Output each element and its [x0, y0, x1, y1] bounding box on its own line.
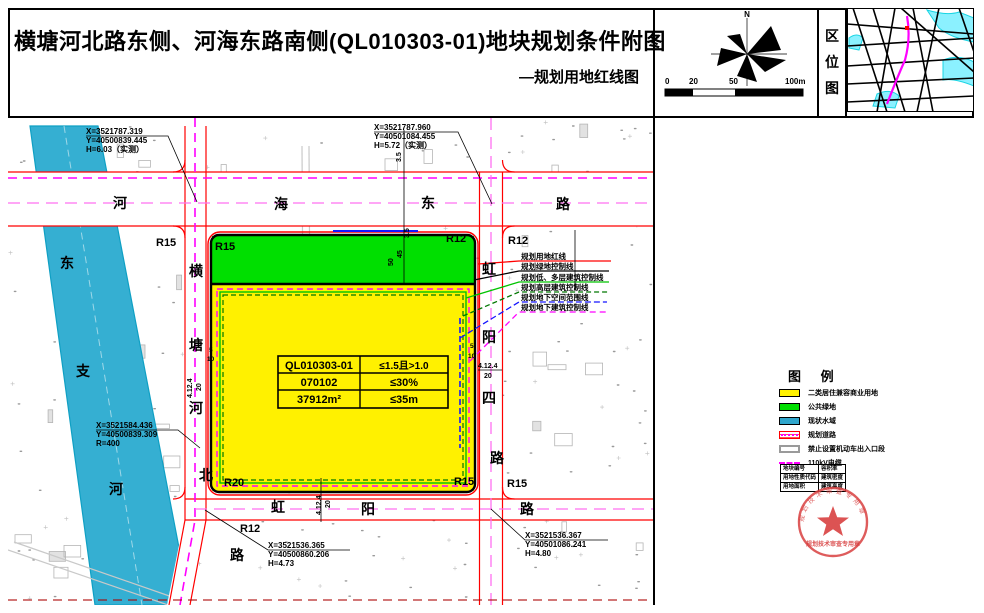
svg-text:Y=40500839.445: Y=40500839.445	[86, 136, 148, 145]
legend-item-green: 公共绿地	[779, 400, 885, 414]
stamp-text: 规划技术审查专用章	[806, 540, 860, 548]
water-swatch	[779, 417, 800, 425]
dim-50: 50	[388, 258, 395, 266]
zone-label: R20	[224, 477, 244, 489]
legend-items: 二类居住兼容商业用地 公共绿地 现状水域 规划道路 禁止设置机动车出入口段 11…	[779, 386, 885, 470]
svg-text:Y=40500839.309: Y=40500839.309	[96, 430, 158, 439]
svg-text:X=3521536.367: X=3521536.367	[525, 531, 582, 540]
compass-scale-panel: N 0 20 50 100m	[653, 8, 817, 116]
svg-text:H=5.72（实测）: H=5.72（实测）	[374, 140, 432, 150]
svg-text:20: 20	[196, 383, 203, 391]
north-label: N	[744, 10, 750, 19]
stamp-graphic: 规划技术审查专用章 规划技术审查专用章	[791, 480, 875, 564]
parcel-far: ≤1.5且>1.0	[379, 360, 429, 372]
svg-text:20: 20	[325, 500, 332, 508]
planned-road-swatch	[779, 431, 800, 439]
south-road-char: 路	[520, 501, 535, 517]
legend-title: 图 例	[788, 366, 842, 385]
zone-label: R12	[446, 233, 466, 245]
drawing-subtitle: —规划用地红线图	[8, 66, 639, 87]
callout-underground-building: 规划地下建筑控制线	[521, 302, 589, 312]
north-road-char: 海	[274, 196, 288, 212]
scale-tick-20: 20	[689, 77, 698, 86]
sheet-header: 横塘河北路东侧、河海东路南侧(QL010303-01)地块规划条件附图 —规划用…	[8, 8, 974, 118]
svg-text:4.12.4: 4.12.4	[187, 378, 194, 398]
west-road-char: 路	[230, 547, 245, 563]
loc-char-1: 区	[825, 26, 839, 46]
loc-char-2: 位	[825, 52, 839, 72]
compass-scale-graphic: N 0 20 50 100m	[655, 8, 819, 116]
zone-label: R15	[156, 237, 176, 249]
river-name-char: 东	[60, 255, 74, 271]
west-road-char: 北	[199, 467, 213, 483]
location-map-panel: 区 位 图	[817, 8, 974, 116]
svg-text:4.12.4: 4.12.4	[316, 495, 323, 515]
river-name-char: 河	[109, 481, 123, 497]
svg-text:H=4.73: H=4.73	[268, 559, 295, 568]
svg-text:H=4.80: H=4.80	[525, 549, 552, 558]
inset-site-marker	[905, 26, 909, 30]
scale-tick-50: 50	[729, 77, 738, 86]
setback-5-left: 5	[209, 347, 213, 354]
green-space-swatch	[779, 403, 800, 411]
location-inset-graphic	[847, 8, 974, 112]
public-green-parcel	[212, 236, 474, 284]
svg-text:20: 20	[484, 373, 492, 380]
svg-text:4.12.4: 4.12.4	[478, 363, 498, 370]
scale-bar: 0 20 50 100m	[665, 77, 805, 96]
scale-tick-0: 0	[665, 77, 670, 86]
location-inset-map	[845, 8, 974, 116]
zone-label: R12	[508, 235, 528, 247]
north-road-char: 河	[113, 195, 127, 211]
north-road-char: 路	[556, 196, 571, 212]
review-stamp: 规划技术审查专用章 规划技术审查专用章	[791, 480, 875, 569]
key-far: 容积率	[819, 465, 846, 474]
legend-panel: 图 例 二类居住兼容商业用地 公共绿地 现状水域 规划道路 禁止设置机动车出入口…	[655, 118, 974, 605]
setback-10-left: 10	[207, 356, 215, 363]
svg-text:X=3521536.365: X=3521536.365	[268, 541, 325, 550]
no-vehicle-entry-swatch	[779, 445, 800, 453]
svg-text:R=400: R=400	[96, 439, 120, 448]
parcel-area: 37912m²	[297, 394, 341, 406]
legend-item-road: 规划道路	[779, 428, 885, 442]
svg-text:Y=40501086.241: Y=40501086.241	[525, 540, 587, 549]
svg-text:H=6.03（实测）: H=6.03（实测）	[86, 144, 144, 154]
map-graphic: QL010303-01 ≤1.5且>1.0 070102 ≤30% 37912m…	[8, 118, 653, 605]
parcel-id: QL010303-01	[285, 360, 353, 372]
zone-label: R15	[507, 478, 527, 490]
scale-tick-100: 100m	[785, 77, 805, 86]
parcel-code: 070102	[301, 377, 338, 389]
west-road-char: 塘	[189, 337, 203, 353]
north-road-char: 东	[421, 195, 435, 211]
location-map-label: 区 位 图	[819, 8, 845, 116]
svg-text:X=3521584.436: X=3521584.436	[96, 421, 153, 430]
title-panel: 横塘河北路东侧、河海东路南侧(QL010303-01)地块规划条件附图 —规划用…	[8, 8, 653, 116]
callout-underground-space: 规划地下空间范围线	[521, 292, 589, 302]
legend-item-water: 现状水域	[779, 414, 885, 428]
callout-highrise: 规划高层建筑控制线	[521, 282, 589, 292]
callout-redline: 规划用地红线	[521, 251, 566, 261]
parcel-density: ≤30%	[390, 377, 418, 389]
callout-lowrise: 规划低、多层建筑控制线	[521, 272, 604, 282]
west-road-char: 横	[189, 263, 204, 279]
parcel-indicator-table: QL010303-01 ≤1.5且>1.0 070102 ≤30% 37912m…	[278, 356, 448, 408]
east-road-char: 虹	[482, 261, 496, 277]
zone-label: R12	[240, 523, 260, 535]
west-road-char: 河	[189, 400, 203, 416]
setback-10-right: 10	[468, 353, 476, 360]
residential-swatch	[779, 389, 800, 397]
east-road-char: 阳	[482, 329, 496, 345]
legend-item-noentry: 禁止设置机动车出入口段	[779, 442, 885, 456]
zone-label: R15	[215, 241, 235, 253]
south-road-char: 虹	[271, 499, 285, 515]
svg-text:X=3521787.319: X=3521787.319	[86, 127, 143, 136]
svg-text:Y=40500860.206: Y=40500860.206	[268, 550, 330, 559]
callout-greenbelt: 规划绿地控制线	[521, 261, 574, 271]
east-road-char: 四	[482, 390, 496, 406]
loc-char-3: 图	[825, 78, 839, 98]
parcel-height: ≤35m	[390, 394, 418, 406]
key-parcel-id: 地块编号	[781, 465, 819, 474]
south-road-char: 阳	[361, 501, 375, 517]
legend-item-residential: 二类居住兼容商业用地	[779, 386, 885, 400]
dim-3.5-mid: 3.5	[404, 228, 411, 238]
stamp-star-icon	[817, 506, 849, 536]
planning-drawing-page: 横塘河北路东侧、河海东路南侧(QL010303-01)地块规划条件附图 —规划用…	[0, 0, 984, 613]
east-road-char: 路	[490, 450, 505, 466]
main-map: QL010303-01 ≤1.5且>1.0 070102 ≤30% 37912m…	[8, 118, 655, 605]
setback-5-right: 5	[470, 343, 474, 350]
river-name-char: 支	[75, 363, 91, 379]
zone-label: R15	[454, 476, 474, 488]
dim-45: 45	[397, 250, 404, 258]
svg-text:Y=40501084.455: Y=40501084.455	[374, 132, 436, 141]
dim-3.5-top: 3.5	[396, 152, 403, 162]
drawing-title: 横塘河北路东侧、河海东路南侧(QL010303-01)地块规划条件附图	[14, 24, 649, 56]
svg-text:X=3521787.960: X=3521787.960	[374, 123, 431, 132]
